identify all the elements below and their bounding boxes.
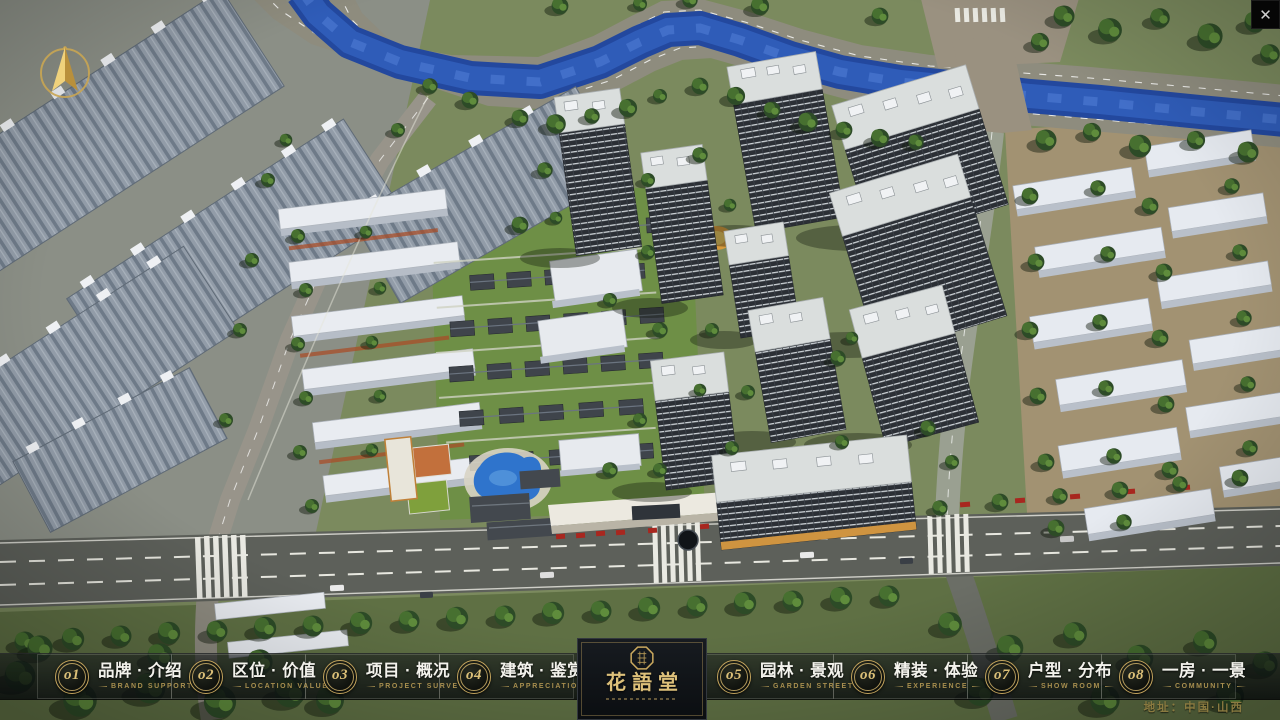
nav-item-landscape[interactable]: o5 园林 · 景观 GARDEN STREET [699,654,834,699]
nav-label-en: COMMUNITY [1162,683,1246,690]
logo-tagline [606,698,678,700]
nav-label-zh: 区位 · 价值 [232,663,316,680]
nav-label-zh: 品牌 · 介绍 [98,663,182,680]
nav-item-location-value[interactable]: o2 区位 · 价值 LOCATION VALUE [171,654,306,699]
nav-number-badge: o7 [985,660,1019,694]
presentation-screen: ✕ o1 品牌 · 介绍 BRAND SUPPORT o2 区位 · 价值 LO… [0,0,1280,720]
nav-number-badge: o4 [457,660,491,694]
nav-group-right: o5 园林 · 景观 GARDEN STREET o6 精装 · 体验 EXPE… [700,654,1236,699]
nav-label-zh: 精装 · 体验 [894,663,978,680]
nav-item-project-overview[interactable]: o3 项目 · 概况 PROJECT SURVEY [305,654,440,699]
nav-label-zh: 园林 · 景观 [760,663,844,680]
logo-seal-icon [629,645,655,671]
close-icon: ✕ [1259,6,1272,24]
nav-number-badge: o8 [1119,660,1153,694]
nav-number-badge: o1 [55,660,89,694]
nav-item-unit-layout[interactable]: o7 户型 · 分布 SHOW ROOM [967,654,1102,699]
nav-number-badge: o2 [189,660,223,694]
logo-panel[interactable]: 花語堂 [577,638,707,720]
nav-label-zh: 一房 · 一景 [1162,663,1246,680]
nav-item-brand-intro[interactable]: o1 品牌 · 介绍 BRAND SUPPORT [37,654,172,699]
logo-title: 花語堂 [600,673,684,693]
nav-label-zh: 建筑 · 鉴赏 [500,663,584,680]
nav-group-left: o1 品牌 · 介绍 BRAND SUPPORT o2 区位 · 价值 LOCA… [38,654,574,699]
masterplan-aerial-render [0,0,1280,720]
north-compass-icon [36,40,94,102]
nav-number-badge: o3 [323,660,357,694]
nav-label-zh: 项目 · 概况 [366,663,450,680]
nav-number-badge: o6 [851,660,885,694]
project-address: 地址：中国·山西 [1144,699,1244,715]
nav-label-zh: 户型 · 分布 [1028,663,1112,680]
nav-number-badge: o5 [717,660,751,694]
nav-item-architecture[interactable]: o4 建筑 · 鉴赏 APPRECIATION [439,654,574,699]
nav-item-interior-experience[interactable]: o6 精装 · 体验 EXPERIENCE [833,654,968,699]
close-button[interactable]: ✕ [1251,0,1280,29]
nav-item-room-view[interactable]: o8 一房 · 一景 COMMUNITY [1101,654,1236,699]
